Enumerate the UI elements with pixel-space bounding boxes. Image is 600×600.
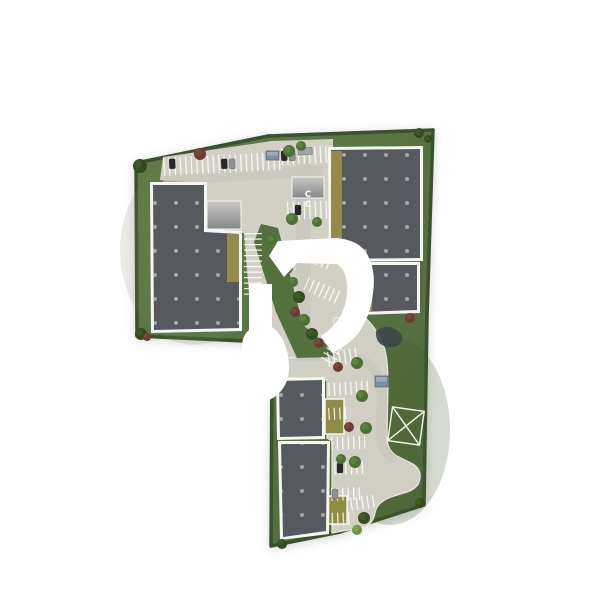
tree-canopy-highlight	[352, 358, 359, 365]
tree-dark	[415, 498, 425, 508]
tree-green	[283, 145, 295, 157]
tree-canopy-highlight	[144, 334, 148, 338]
car-body	[337, 463, 343, 473]
tree-red	[314, 338, 324, 348]
tree-green	[286, 213, 298, 225]
tree-green	[312, 217, 322, 227]
parking-stripes	[328, 407, 351, 420]
tree-red	[333, 362, 343, 372]
tree-red	[194, 148, 206, 160]
tree-canopy-highlight	[350, 457, 357, 464]
tree-dark	[414, 128, 424, 138]
tree-canopy-highlight	[299, 315, 306, 322]
warehouse-e-roof-skylights	[281, 444, 327, 537]
tree-canopy-highlight	[334, 363, 340, 369]
tree-green	[288, 277, 298, 287]
tree-canopy-highlight	[136, 329, 143, 336]
car-body	[169, 159, 176, 169]
tree-red	[344, 422, 354, 432]
parked-car	[229, 159, 236, 169]
tree-canopy-highlight	[287, 214, 294, 221]
tree-canopy-highlight	[353, 526, 359, 532]
shed-roof-highlight	[376, 377, 387, 382]
tree-canopy-highlight	[297, 142, 303, 148]
tree-bright	[352, 525, 362, 535]
tree-canopy-highlight	[359, 513, 366, 520]
tree-canopy-highlight	[284, 146, 291, 153]
parking-stripes	[331, 436, 365, 450]
parking-stripes	[326, 512, 352, 526]
tree-canopy-highlight	[195, 149, 202, 156]
tree-canopy-highlight	[337, 455, 343, 461]
tree-canopy-highlight	[313, 218, 319, 224]
tree-dark	[306, 328, 318, 340]
tree-canopy-highlight	[291, 308, 297, 314]
tree-dark	[424, 135, 432, 143]
tree-red	[143, 333, 151, 341]
site-plan-rendering: CC	[0, 0, 600, 600]
tree-dark	[133, 159, 147, 173]
car-body	[221, 159, 228, 169]
parking-row	[331, 436, 365, 450]
tree-canopy-highlight	[289, 278, 295, 284]
tree-canopy-highlight	[357, 391, 364, 398]
tree-canopy-highlight	[406, 314, 412, 320]
tree-canopy-highlight	[134, 160, 142, 168]
parking-row	[326, 512, 352, 526]
parking-row	[328, 407, 351, 420]
tree-green	[296, 141, 306, 151]
car-body	[229, 159, 236, 169]
tree-canopy-highlight	[345, 423, 351, 429]
tree-canopy-highlight	[278, 540, 284, 546]
tree-canopy-highlight	[268, 236, 274, 242]
tree-green	[351, 357, 363, 369]
warehouse-d-roof-skylights	[279, 380, 322, 437]
warehouse-a-yellow-strip	[227, 234, 239, 282]
tree-green	[336, 454, 346, 464]
tree-red	[405, 313, 415, 323]
tree-canopy-highlight	[307, 329, 314, 336]
tree-dark	[277, 539, 287, 549]
parked-car	[337, 463, 343, 473]
tree-green	[360, 422, 372, 434]
tree-red	[290, 307, 300, 317]
tree-canopy-highlight	[294, 292, 301, 299]
car-body	[295, 205, 301, 215]
site-plan-screenshot: Aerial top-down 3D architectural site pl…	[0, 0, 600, 600]
tree-green	[298, 314, 310, 326]
tree-canopy-highlight	[361, 423, 368, 430]
parked-car	[221, 159, 228, 169]
parked-car	[332, 489, 338, 499]
pavement-letter: C	[305, 200, 311, 210]
shed-roof-highlight	[267, 152, 278, 156]
dock-ramp	[207, 201, 241, 229]
tree-green	[349, 456, 361, 468]
pavement-letter: C	[305, 190, 311, 200]
tree-dark	[293, 291, 305, 303]
tree-green	[356, 390, 368, 402]
tree-canopy-highlight	[315, 339, 321, 345]
tree-canopy-highlight	[415, 129, 421, 135]
tree-green	[267, 235, 277, 245]
car-body	[332, 489, 338, 499]
tree-canopy-highlight	[425, 136, 429, 140]
parked-car	[169, 159, 176, 169]
parked-car	[295, 205, 301, 215]
warehouse-e	[278, 441, 330, 540]
tree-dark	[358, 512, 370, 524]
tree-canopy-highlight	[416, 499, 422, 505]
